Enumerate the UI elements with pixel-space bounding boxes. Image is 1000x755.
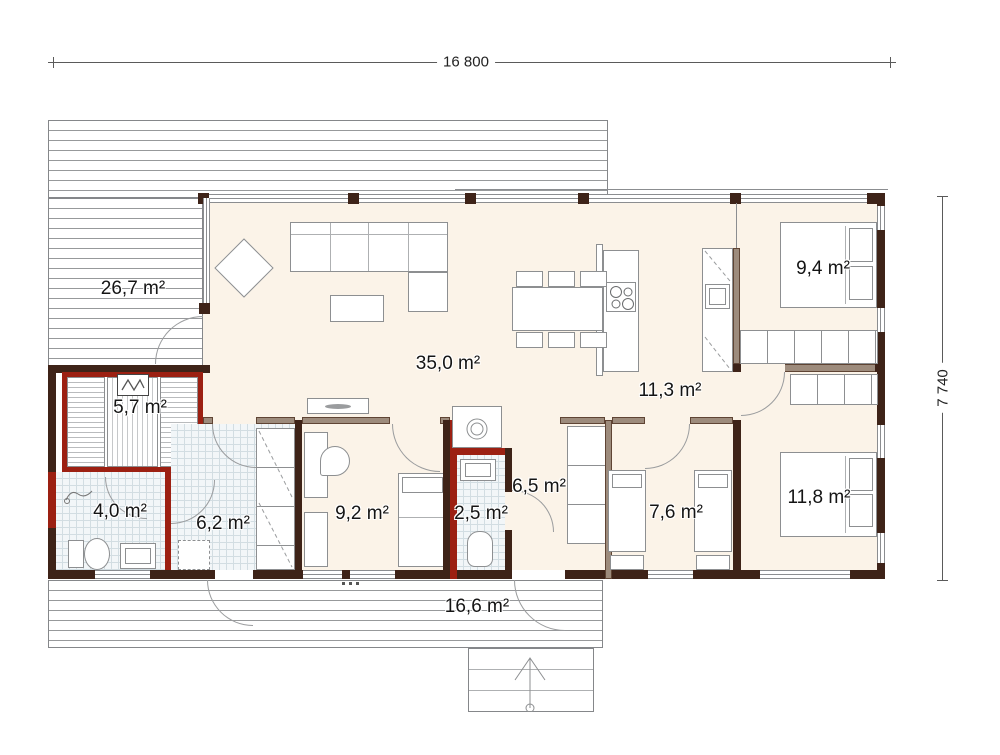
column-post [348, 193, 359, 204]
wc-toilet [467, 531, 493, 567]
room-label-sauna: 5,7 m² [113, 397, 167, 419]
threshold-dot [342, 582, 345, 585]
sideboard-handle [325, 404, 351, 409]
wall-block [733, 364, 741, 372]
partition-wall [443, 420, 450, 579]
dining-table [512, 287, 603, 331]
room-label-kids-room: 7,6 m² [649, 502, 703, 524]
partition-wall [256, 417, 295, 424]
sofa-seam [408, 223, 409, 271]
wardrobe-row [740, 330, 878, 364]
sink-basin [709, 288, 726, 305]
floor-plan: 16 800 7 740 [0, 0, 1000, 755]
column-post [465, 193, 476, 204]
wardrobe-row [790, 374, 878, 405]
dimension-right-label: 7 740 [935, 363, 952, 413]
room-label-bedroom-small: 9,2 m² [335, 503, 389, 525]
room-label-deck-bottom: 16,6 m² [445, 596, 509, 618]
sofa-seam [330, 223, 331, 271]
glass-partition [736, 203, 737, 248]
sofa [290, 222, 448, 272]
bedside-table [696, 555, 730, 570]
pillow [698, 474, 728, 488]
coffee-table [330, 295, 384, 322]
pillow [402, 477, 443, 493]
utility-wardrobe [256, 428, 295, 570]
utility-exterior-door-gap [215, 570, 253, 579]
window [350, 570, 395, 579]
laundry-unit [452, 406, 502, 448]
window-band-top [203, 194, 877, 203]
pillow [849, 458, 873, 491]
room-label-bedroom-master: 11,8 m² [787, 487, 850, 509]
window [648, 570, 693, 579]
pillow [849, 266, 873, 300]
wall-block [875, 364, 885, 372]
entry-arrow-icon [498, 650, 562, 712]
dimension-tick [48, 62, 59, 63]
exterior-wall-right [877, 193, 885, 579]
entry-door-gap [512, 570, 565, 579]
room-label-living: 35,0 m² [416, 353, 480, 375]
partition-wall [733, 248, 740, 364]
hall-wardrobe [567, 426, 607, 544]
room-label-wc: 2,5 m² [454, 503, 508, 525]
deck-top [48, 120, 608, 198]
sauna-bench [67, 377, 105, 467]
partition-wall [505, 448, 512, 492]
partition-wall [690, 417, 733, 424]
toilet [68, 540, 84, 568]
sofa-chaise [408, 272, 448, 312]
cabinet [304, 512, 328, 567]
window [877, 533, 885, 563]
window [877, 308, 885, 332]
room-label-utility: 6,2 m² [196, 513, 250, 535]
window [877, 425, 885, 458]
window [95, 570, 150, 579]
chair [548, 332, 575, 348]
column-post [578, 193, 589, 204]
threshold-dot [356, 582, 359, 585]
column-post [199, 303, 210, 314]
bedside-table [610, 555, 644, 570]
sauna-heater-icon [117, 374, 149, 396]
window [760, 570, 850, 579]
partition-wall [302, 417, 390, 424]
window [303, 570, 342, 579]
partition-wall [203, 417, 213, 424]
dimension-top-label: 16 800 [437, 54, 495, 71]
sink-basin [465, 463, 491, 477]
room-label-bathroom: 4,0 m² [93, 501, 147, 523]
window [877, 206, 885, 230]
red-wall-bathroom-left [48, 472, 56, 528]
room-label-deck-left: 26,7 m² [101, 278, 165, 300]
chair [516, 271, 543, 287]
partition-wall [295, 420, 302, 579]
pillow [849, 494, 873, 527]
chair [516, 332, 543, 348]
room-label-hallway: 11,3 m² [638, 380, 701, 402]
threshold-dot [349, 582, 352, 585]
dimension-tick [937, 580, 948, 581]
partition-wall [733, 420, 741, 579]
red-wall-wc-top [457, 448, 512, 455]
dimension-tick [885, 62, 896, 63]
cooktop [606, 282, 636, 312]
partition-wall [612, 417, 645, 424]
chair [580, 271, 607, 287]
room-label-hall-small: 6,5 m² [512, 476, 566, 498]
pillow [612, 474, 642, 488]
master-door-gap [741, 364, 785, 372]
pillow [849, 228, 873, 262]
toilet-bowl [84, 538, 110, 570]
washing-machine [178, 540, 210, 570]
sink-basin [125, 548, 151, 564]
room-label-bedroom-top: 9,4 m² [796, 258, 850, 280]
roof-line [455, 189, 888, 190]
chair [580, 332, 607, 348]
sofa-back-line [291, 234, 447, 235]
window-band-left [203, 198, 210, 305]
partition-wall [560, 417, 605, 424]
partition-wall [505, 530, 512, 579]
blanket-line [399, 517, 446, 518]
dimension-tick [937, 196, 948, 197]
armchair [320, 446, 350, 476]
sofa-seam [368, 223, 369, 271]
chair [548, 271, 575, 287]
kitchen-counter [702, 248, 733, 372]
